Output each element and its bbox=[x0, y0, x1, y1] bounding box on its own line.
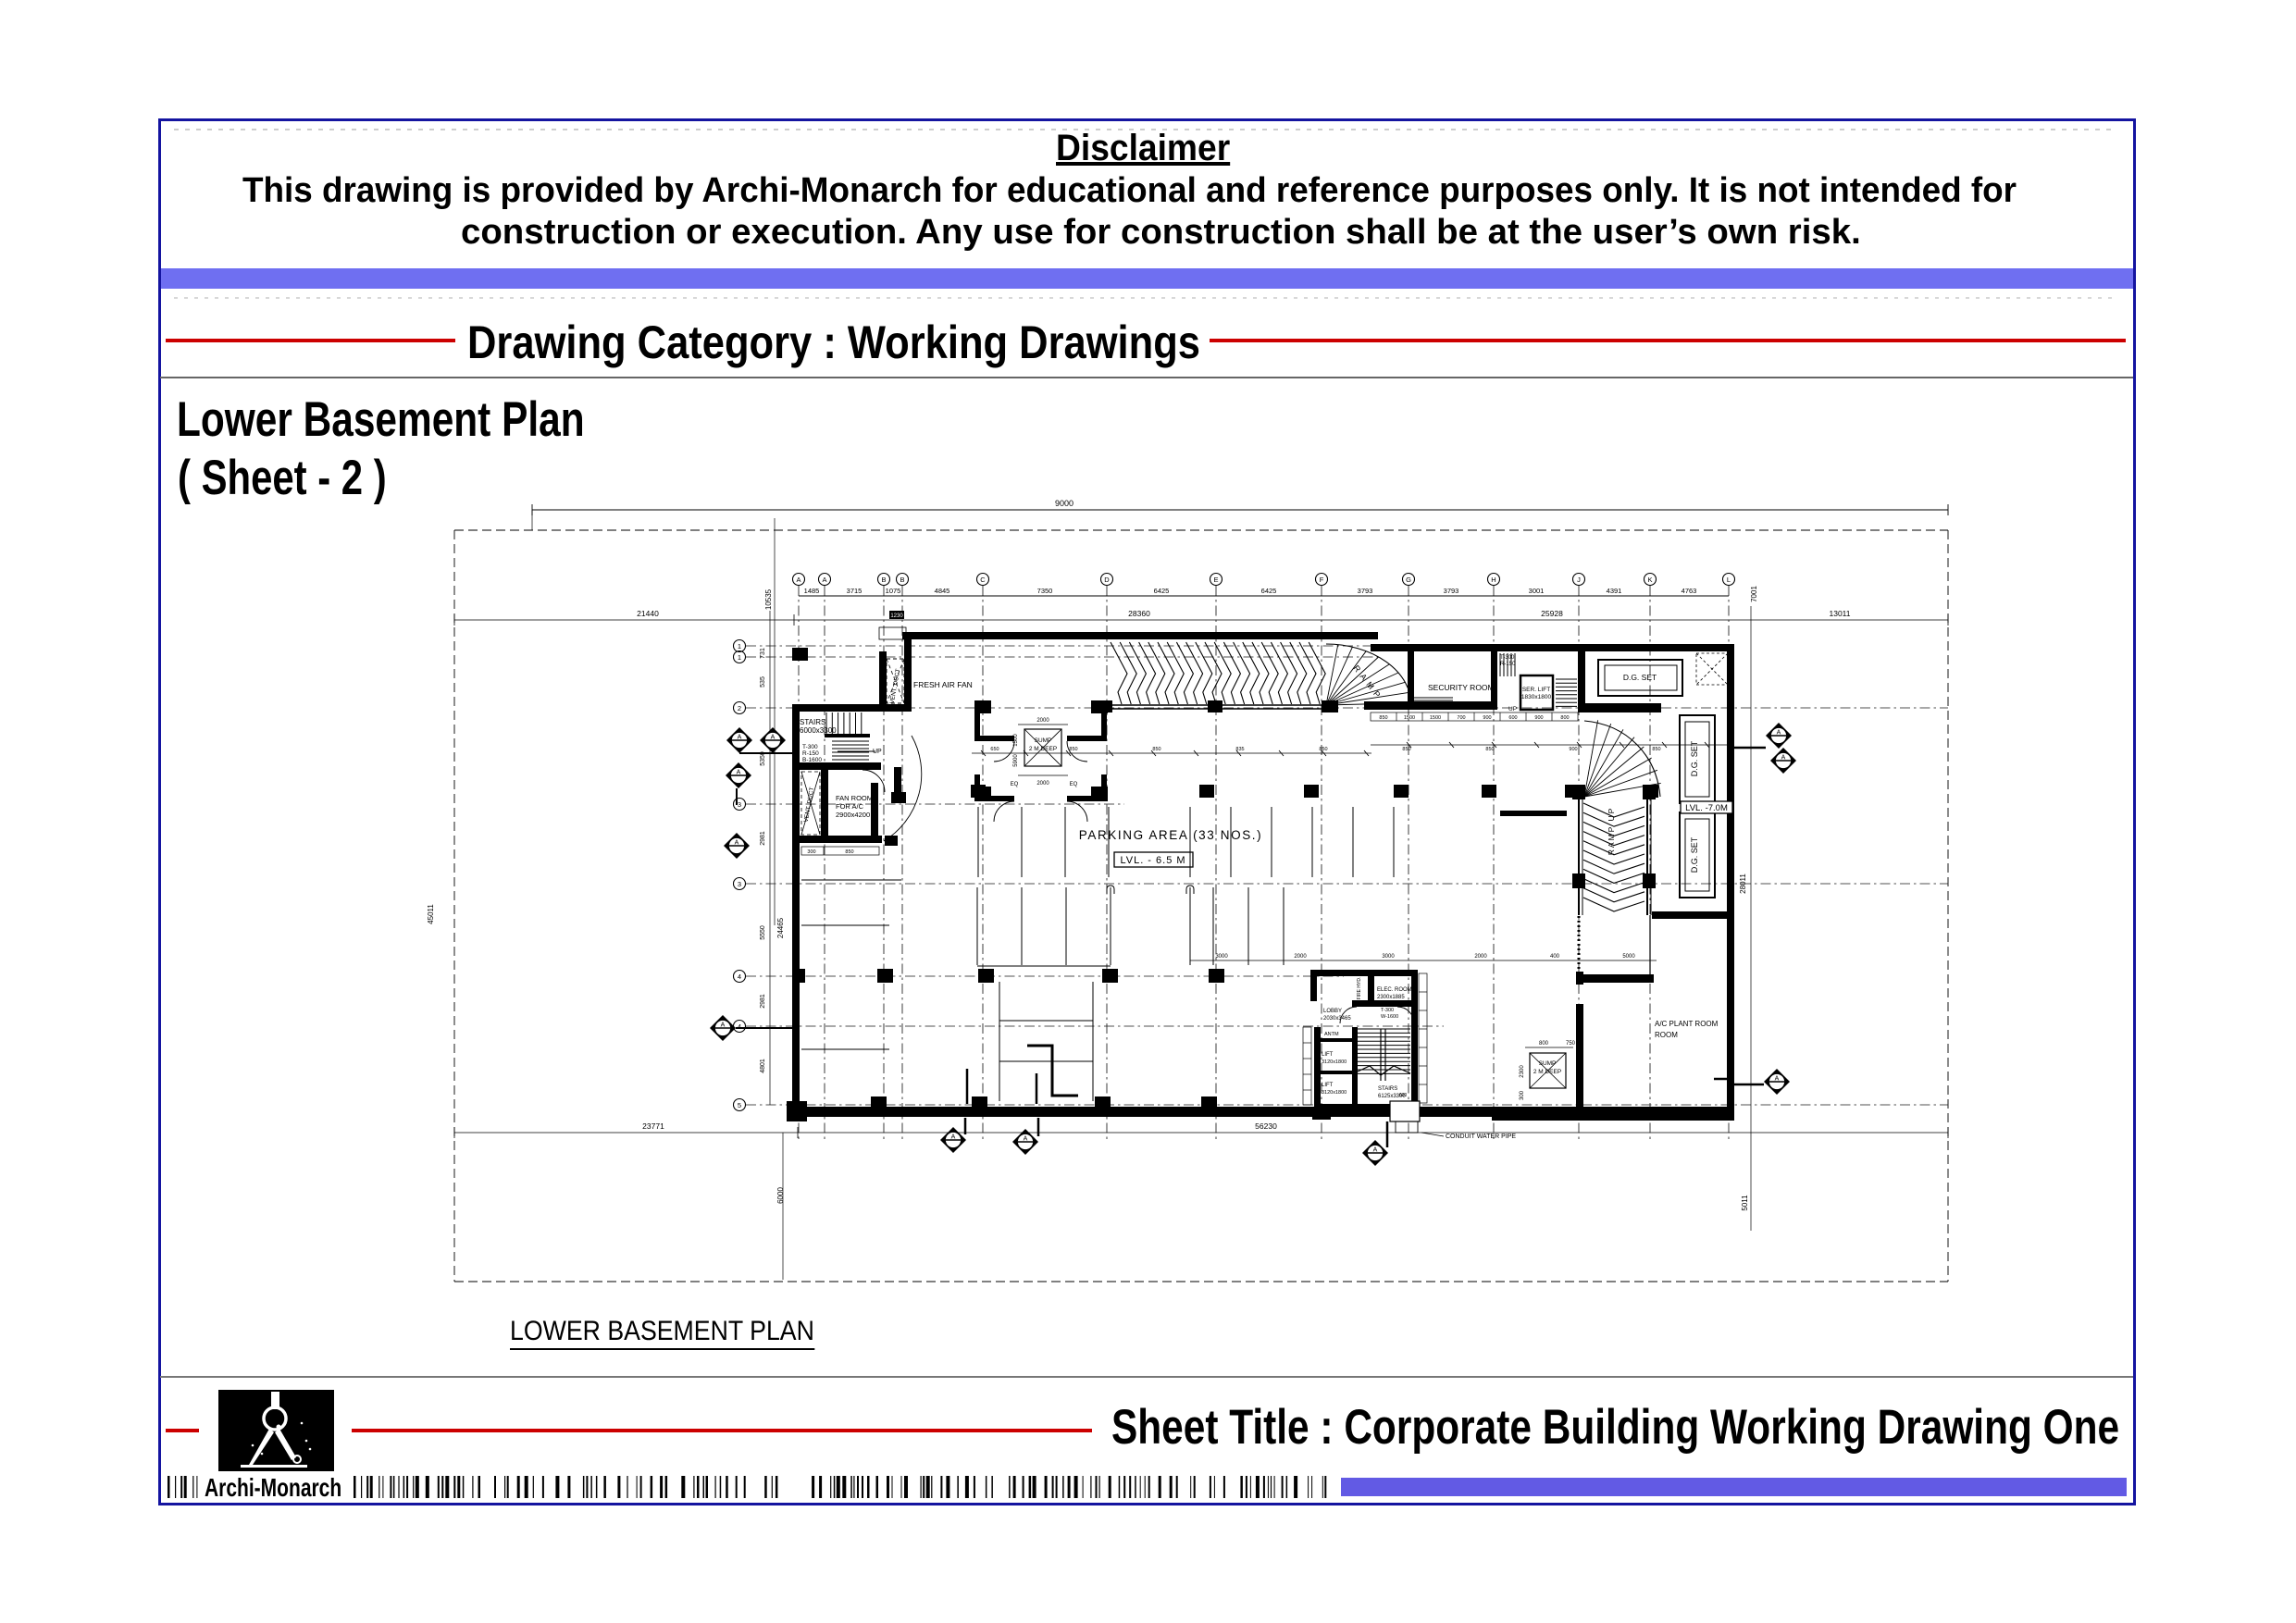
svg-text:24465: 24465 bbox=[776, 917, 785, 938]
svg-text:3: 3 bbox=[738, 880, 741, 888]
svg-text:ANTM: ANTM bbox=[1324, 1032, 1339, 1037]
svg-text:5: 5 bbox=[738, 1101, 741, 1109]
svg-text:7350: 7350 bbox=[1037, 587, 1053, 595]
svg-text:300: 300 bbox=[807, 849, 815, 855]
svg-text:535: 535 bbox=[760, 676, 766, 688]
svg-text:7001: 7001 bbox=[1750, 586, 1758, 602]
svg-text:T-300: T-300 bbox=[1500, 655, 1515, 661]
svg-text:400: 400 bbox=[1550, 954, 1560, 960]
svg-text:A: A bbox=[1781, 755, 1786, 762]
svg-text:800: 800 bbox=[1560, 715, 1569, 721]
svg-text:E: E bbox=[1213, 576, 1218, 584]
svg-text:2981: 2981 bbox=[760, 831, 766, 846]
svg-text:T-300: T-300 bbox=[1381, 1008, 1394, 1013]
svg-text:4801: 4801 bbox=[760, 1059, 766, 1073]
svg-text:LVL. - 6.5 M: LVL. - 6.5 M bbox=[1120, 855, 1185, 866]
svg-text:F: F bbox=[1320, 576, 1324, 584]
svg-text:B-1600: B-1600 bbox=[802, 757, 822, 763]
svg-text:SECURITY ROOM: SECURITY ROOM bbox=[1428, 683, 1495, 692]
svg-text:A/C PLANT ROOM: A/C PLANT ROOM bbox=[1655, 1020, 1719, 1028]
svg-text:PARKING AREA (33 NOS.): PARKING AREA (33 NOS.) bbox=[1079, 828, 1263, 842]
svg-text:28360: 28360 bbox=[1128, 609, 1150, 618]
svg-text:A: A bbox=[1775, 1076, 1780, 1083]
svg-text:2: 2 bbox=[738, 704, 741, 712]
svg-text:800: 800 bbox=[1539, 1041, 1549, 1047]
svg-text:850: 850 bbox=[1152, 747, 1160, 752]
svg-text:850: 850 bbox=[845, 849, 853, 855]
svg-text:900: 900 bbox=[1483, 715, 1491, 721]
svg-text:J: J bbox=[1577, 576, 1581, 584]
svg-text:2030x3465: 2030x3465 bbox=[1323, 1016, 1351, 1022]
svg-text:VENT. DUCT: VENT. DUCT bbox=[803, 787, 816, 823]
svg-text:21440: 21440 bbox=[637, 609, 659, 618]
svg-text:835: 835 bbox=[1235, 747, 1244, 752]
svg-text:45011: 45011 bbox=[427, 904, 435, 924]
svg-text:A: A bbox=[735, 840, 739, 847]
svg-text:FIRE HYD.: FIRE HYD. bbox=[1357, 977, 1362, 1000]
svg-text:D: D bbox=[1104, 576, 1110, 584]
svg-text:850: 850 bbox=[1069, 747, 1077, 752]
svg-text:5900: 5900 bbox=[1013, 754, 1019, 767]
svg-text:731: 731 bbox=[760, 648, 766, 659]
svg-text:3793: 3793 bbox=[1444, 587, 1459, 595]
svg-text:23771: 23771 bbox=[642, 1121, 664, 1131]
svg-text:H: H bbox=[1491, 576, 1496, 584]
svg-text:3120x1800: 3120x1800 bbox=[1322, 1090, 1347, 1096]
svg-text:56230: 56230 bbox=[1255, 1121, 1277, 1131]
svg-text:13011: 13011 bbox=[1829, 609, 1850, 618]
svg-text:5000: 5000 bbox=[1622, 954, 1635, 960]
svg-text:9000: 9000 bbox=[1055, 499, 1074, 508]
svg-text:2981: 2981 bbox=[760, 994, 766, 1009]
svg-text:4: 4 bbox=[738, 1022, 741, 1031]
svg-text:6000x3300: 6000x3300 bbox=[800, 726, 837, 735]
svg-text:STAIRS: STAIRS bbox=[800, 718, 825, 726]
svg-text:A: A bbox=[1777, 730, 1781, 737]
svg-text:600: 600 bbox=[1399, 1093, 1408, 1098]
svg-text:A: A bbox=[1024, 1136, 1028, 1143]
svg-text:VENT. DUCT: VENT. DUCT bbox=[889, 668, 902, 704]
svg-text:2000: 2000 bbox=[1294, 954, 1307, 960]
svg-text:3715: 3715 bbox=[847, 587, 863, 595]
svg-text:L: L bbox=[1727, 576, 1731, 584]
svg-text:900: 900 bbox=[1569, 747, 1577, 752]
svg-text:W-1600: W-1600 bbox=[1381, 1014, 1398, 1020]
svg-text:A: A bbox=[721, 1022, 726, 1029]
svg-text:1485: 1485 bbox=[804, 587, 820, 595]
svg-text:A: A bbox=[822, 576, 826, 584]
svg-text:4845: 4845 bbox=[935, 587, 950, 595]
svg-text:B: B bbox=[881, 576, 886, 584]
svg-text:650: 650 bbox=[990, 747, 999, 752]
svg-text:FAN ROOM: FAN ROOM bbox=[836, 794, 873, 802]
svg-text:B: B bbox=[900, 576, 904, 584]
svg-text:6425: 6425 bbox=[1154, 587, 1170, 595]
svg-text:FOR A/C: FOR A/C bbox=[836, 802, 864, 811]
svg-text:6425: 6425 bbox=[1261, 587, 1277, 595]
svg-text:600: 600 bbox=[1508, 715, 1517, 721]
svg-text:R-150: R-150 bbox=[1500, 662, 1516, 667]
svg-text:1500: 1500 bbox=[1404, 715, 1415, 721]
svg-text:STAIRS: STAIRS bbox=[1378, 1086, 1397, 1092]
svg-text:SUMP: SUMP bbox=[1035, 737, 1052, 744]
svg-text:3001: 3001 bbox=[1529, 587, 1545, 595]
svg-text:EQ: EQ bbox=[1011, 782, 1019, 787]
svg-text:D.G. SET: D.G. SET bbox=[1623, 673, 1657, 682]
svg-text:3793: 3793 bbox=[1358, 587, 1373, 595]
svg-text:R-150: R-150 bbox=[802, 750, 819, 757]
svg-text:SUMP: SUMP bbox=[1539, 1060, 1557, 1067]
svg-text:2900x4200: 2900x4200 bbox=[836, 811, 870, 819]
svg-text:5550: 5550 bbox=[760, 925, 766, 940]
svg-text:6000: 6000 bbox=[776, 1187, 785, 1204]
svg-text:A: A bbox=[951, 1134, 956, 1141]
svg-text:RAMP: RAMP bbox=[1351, 663, 1384, 702]
svg-text:D.G. SET: D.G. SET bbox=[1690, 836, 1699, 873]
svg-text:T-300: T-300 bbox=[802, 744, 818, 750]
svg-text:10535: 10535 bbox=[764, 588, 773, 610]
svg-text:1: 1 bbox=[738, 642, 741, 650]
svg-text:1500: 1500 bbox=[1430, 715, 1441, 721]
svg-text:LOBBY: LOBBY bbox=[1323, 1009, 1342, 1014]
svg-text:2300x1885: 2300x1885 bbox=[1377, 995, 1405, 1000]
svg-text:5011: 5011 bbox=[1741, 1195, 1749, 1211]
svg-text:3120x1800: 3120x1800 bbox=[1322, 1059, 1347, 1065]
svg-text:2300: 2300 bbox=[1520, 1065, 1525, 1078]
svg-text:850: 850 bbox=[1485, 747, 1494, 752]
svg-text:1: 1 bbox=[738, 653, 741, 662]
svg-text:2 M DEEP: 2 M DEEP bbox=[1029, 746, 1057, 752]
svg-text:3000: 3000 bbox=[1215, 954, 1228, 960]
svg-text:A: A bbox=[1373, 1147, 1378, 1154]
svg-text:700: 700 bbox=[1457, 715, 1465, 721]
svg-text:A: A bbox=[771, 735, 776, 741]
svg-text:D.G. SET: D.G. SET bbox=[1690, 740, 1699, 776]
svg-text:4: 4 bbox=[738, 973, 741, 981]
svg-text:LIFT: LIFT bbox=[1322, 1052, 1334, 1058]
svg-text:ELEC. ROOM: ELEC. ROOM bbox=[1377, 987, 1412, 993]
svg-text:2 M DEEP: 2 M DEEP bbox=[1533, 1069, 1561, 1075]
svg-text:2000: 2000 bbox=[1036, 718, 1049, 724]
svg-text:1230: 1230 bbox=[890, 613, 903, 619]
svg-text:2000: 2000 bbox=[1036, 781, 1049, 787]
svg-text:1830x1800: 1830x1800 bbox=[1521, 694, 1552, 700]
svg-text:RAMP UP: RAMP UP bbox=[1607, 807, 1616, 856]
svg-text:750: 750 bbox=[1566, 1041, 1576, 1047]
svg-text:K: K bbox=[1647, 576, 1652, 584]
svg-text:EQ: EQ bbox=[1070, 782, 1078, 787]
svg-text:ROOM: ROOM bbox=[1655, 1031, 1678, 1039]
svg-text:A: A bbox=[738, 735, 742, 741]
svg-text:850: 850 bbox=[1652, 747, 1660, 752]
svg-text:850: 850 bbox=[1379, 715, 1387, 721]
svg-text:3000: 3000 bbox=[1382, 954, 1395, 960]
svg-text:2000: 2000 bbox=[1474, 954, 1487, 960]
svg-text:850: 850 bbox=[1402, 747, 1410, 752]
svg-text:FRESH AIR FAN: FRESH AIR FAN bbox=[913, 680, 973, 689]
svg-text:A: A bbox=[796, 576, 800, 584]
svg-text:A: A bbox=[737, 770, 741, 776]
svg-text:1075: 1075 bbox=[886, 587, 901, 595]
svg-text:4391: 4391 bbox=[1607, 587, 1622, 595]
svg-text:4763: 4763 bbox=[1682, 587, 1697, 595]
svg-text:300: 300 bbox=[1520, 1090, 1525, 1100]
svg-text:3: 3 bbox=[738, 800, 741, 809]
svg-text:900: 900 bbox=[1534, 715, 1543, 721]
svg-text:UP: UP bbox=[873, 749, 882, 755]
svg-text:SER. LIFT: SER. LIFT bbox=[1522, 687, 1550, 693]
svg-text:CONDUIT WATER PIPE: CONDUIT WATER PIPE bbox=[1446, 1134, 1516, 1140]
svg-text:25928: 25928 bbox=[1541, 609, 1563, 618]
svg-text:LVL. -7.0M: LVL. -7.0M bbox=[1685, 803, 1728, 813]
svg-text:LIFT: LIFT bbox=[1322, 1083, 1334, 1088]
svg-text:C: C bbox=[980, 576, 986, 584]
svg-text:UP: UP bbox=[1508, 706, 1517, 712]
svg-text:850: 850 bbox=[1319, 747, 1327, 752]
svg-text:G: G bbox=[1406, 576, 1411, 584]
